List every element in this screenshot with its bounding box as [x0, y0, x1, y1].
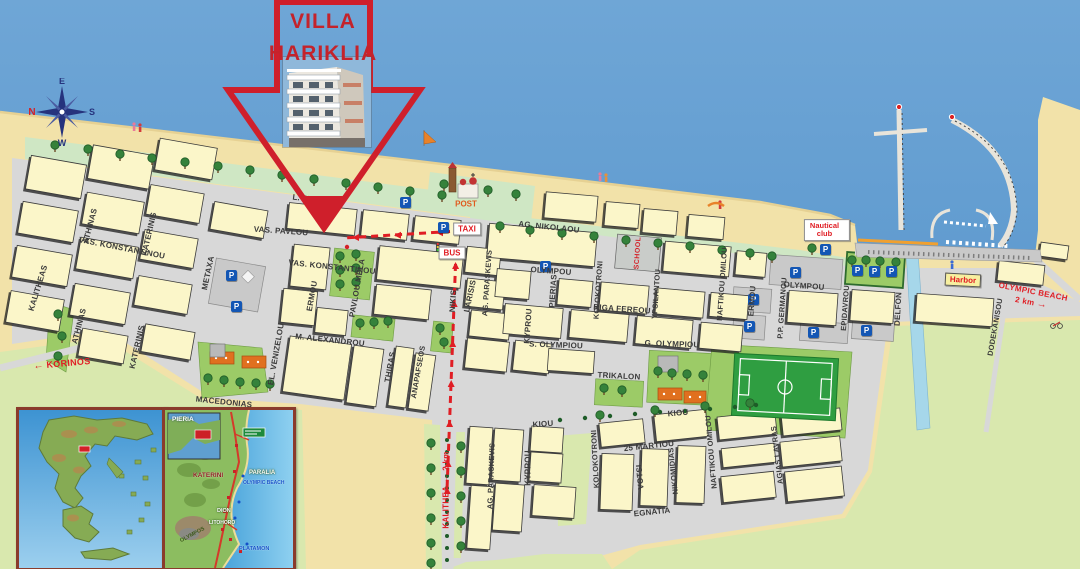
direction-olympic-beach-distance: 2 km: [1014, 295, 1035, 308]
street-label: KYPROU: [524, 450, 533, 485]
parking-icon: P: [820, 244, 831, 255]
parking-icon: P: [438, 222, 449, 233]
parking-icon: P: [808, 327, 819, 338]
bus-sign: BUS: [439, 247, 466, 260]
inset-place-label: PARALIA: [249, 470, 275, 476]
nautical-club-line2: club: [817, 230, 832, 238]
villa-photo: [283, 57, 371, 147]
parking-icon: P: [231, 301, 242, 312]
inset-place-label: OLYMPIC BEACH: [243, 480, 285, 486]
street-label: DELFON: [893, 292, 904, 327]
parking-icon: P: [400, 197, 411, 208]
pieria-inset-map: PIERIA KATERINI PARALIA OLYMPIC BEACH DI…: [162, 407, 296, 569]
park-building-2: [210, 344, 225, 357]
greece-inset-pieria-marker: [79, 446, 90, 452]
nautical-club-sign: Nautical club: [804, 219, 850, 241]
greece-inset-map: [16, 407, 168, 569]
parking-icon: P: [226, 270, 237, 281]
arrow-left-icon: ←: [441, 473, 452, 483]
street-label: NIKIS: [448, 290, 459, 313]
post-office-label: POST: [455, 200, 477, 209]
parking-icon: P: [886, 266, 897, 277]
inset-place-label: LITOHORO: [209, 520, 235, 526]
street-label: KIOU: [667, 408, 689, 419]
direction-kalithea-text: KALITHEA: [442, 486, 451, 529]
villa-title-line1: VILLA: [223, 10, 423, 34]
arrow-left-icon: ←: [33, 360, 44, 372]
villa-title-line2: HARIKLIA: [223, 42, 423, 66]
street-label: G. OLYMPIOU: [644, 339, 699, 350]
inset-place-label: KATERINI: [193, 472, 223, 479]
villa-location-dot: [345, 245, 349, 249]
town-map: E S W N L. STRATOU VAS. PAVLOU AG. NIKOL…: [0, 0, 1080, 569]
taxi-sign: TAXI: [453, 223, 481, 236]
parking-icon: P: [861, 325, 872, 336]
parking-icon: P: [790, 267, 801, 278]
parking-icon: P: [744, 321, 755, 332]
compass-rose: E S W N: [28, 78, 96, 146]
street-label: S. OLYMPIOU: [529, 340, 583, 351]
arrow-right-icon: →: [1036, 298, 1048, 311]
compass-west-label: W: [58, 138, 67, 146]
inset-place-label: PLATAMON: [239, 546, 269, 552]
pieria-inset-title: PIERIA: [172, 416, 194, 423]
parking-icon: P: [852, 265, 863, 276]
parking-icon: P: [869, 266, 880, 277]
direction-kalithea-distance: 2 km: [442, 451, 451, 470]
compass-east-label: E: [59, 78, 65, 86]
compass-north-label: N: [28, 107, 35, 118]
direction-kalithea: KALITHEA ← 2 km: [441, 451, 452, 528]
street-label: KIOU: [532, 419, 553, 429]
compass-south-label: S: [89, 107, 95, 117]
football-field: [731, 353, 838, 420]
inset-place-label: DION: [217, 508, 231, 514]
harbor-sign: Harbor: [945, 273, 982, 288]
highway-sign-icon: [243, 428, 265, 437]
